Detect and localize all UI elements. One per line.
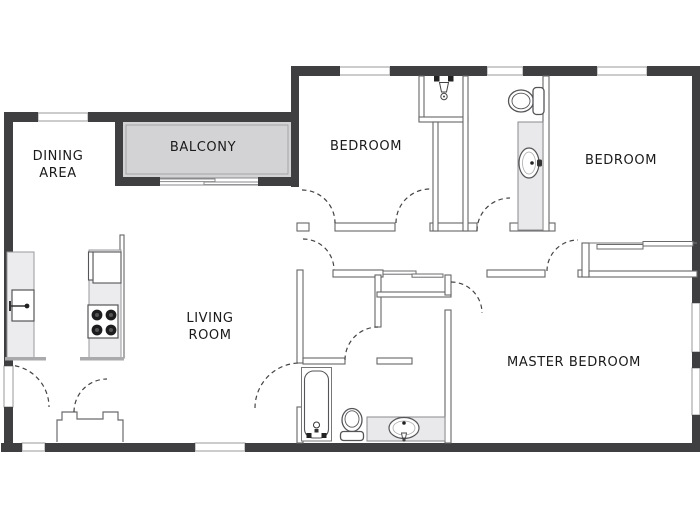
master-sliding-closet-icon <box>589 242 697 250</box>
window-bedroom2-top <box>597 67 647 75</box>
window-dining-top <box>38 113 88 121</box>
door-arc-master-bath <box>451 282 482 313</box>
side-door-opening <box>4 366 13 407</box>
window-bedroom1-top <box>339 67 390 75</box>
door-arc-entry-closet <box>74 379 107 412</box>
window-bottom-left <box>22 443 45 451</box>
upper-bathroom <box>434 76 544 230</box>
door-arc-bath2 <box>345 327 378 360</box>
label-balcony: BALCONY <box>170 140 236 155</box>
door-arc-living-hall <box>255 363 300 408</box>
refrigerator-icon <box>89 252 122 283</box>
shower-icon <box>434 76 454 100</box>
entry-closet <box>57 412 123 442</box>
kitchen <box>5 250 124 361</box>
door-arc-bath1 <box>477 198 510 231</box>
lower-bathroom <box>302 368 446 442</box>
label-master-bedroom: MASTER BEDROOM <box>507 355 641 370</box>
floor-plan-svg: DINING AREA BALCONY BEDROOM BEDROOM LIVI… <box>0 0 700 525</box>
shower-south-wall <box>419 117 468 122</box>
hall-sliding-closet-icon <box>383 271 443 277</box>
label-living-room-line1: LIVING <box>186 311 233 326</box>
window-bath1-top <box>487 67 523 75</box>
stove-icon <box>88 305 118 338</box>
label-living-room-line2: ROOM <box>188 328 231 343</box>
floor-plan-canvas: DINING AREA BALCONY BEDROOM BEDROOM LIVI… <box>0 0 700 525</box>
door-arc-master <box>547 240 578 271</box>
linen-closet-west-wall <box>433 122 438 231</box>
toilet-upper-icon <box>509 88 545 115</box>
counter-right-cap <box>80 357 124 361</box>
door-arc-bedroom1-west <box>302 190 335 223</box>
bath2-east-wall <box>445 310 451 443</box>
label-dining-area-line2: AREA <box>39 166 76 181</box>
label-dining-area-line1: DINING <box>33 149 84 164</box>
label-bedroom-top: BEDROOM <box>330 139 402 154</box>
bathtub-icon <box>302 368 332 442</box>
balcony-sliding-door-icon <box>159 178 259 185</box>
shower-west-wall <box>419 76 424 121</box>
label-bedroom-right: BEDROOM <box>585 153 657 168</box>
bath1-west-wall <box>463 76 468 231</box>
kitchen-sink-icon <box>10 290 34 321</box>
door-arc-bedroom1-hall <box>396 189 430 223</box>
window-master-right-1 <box>692 303 700 352</box>
window-living-bottom <box>195 443 245 451</box>
toilet-lower-icon <box>341 409 364 441</box>
counter-left-cap <box>5 357 46 361</box>
master-closet-front-wall <box>589 271 697 277</box>
door-arc-hall-lower <box>303 239 334 270</box>
window-master-right-2 <box>692 368 700 415</box>
